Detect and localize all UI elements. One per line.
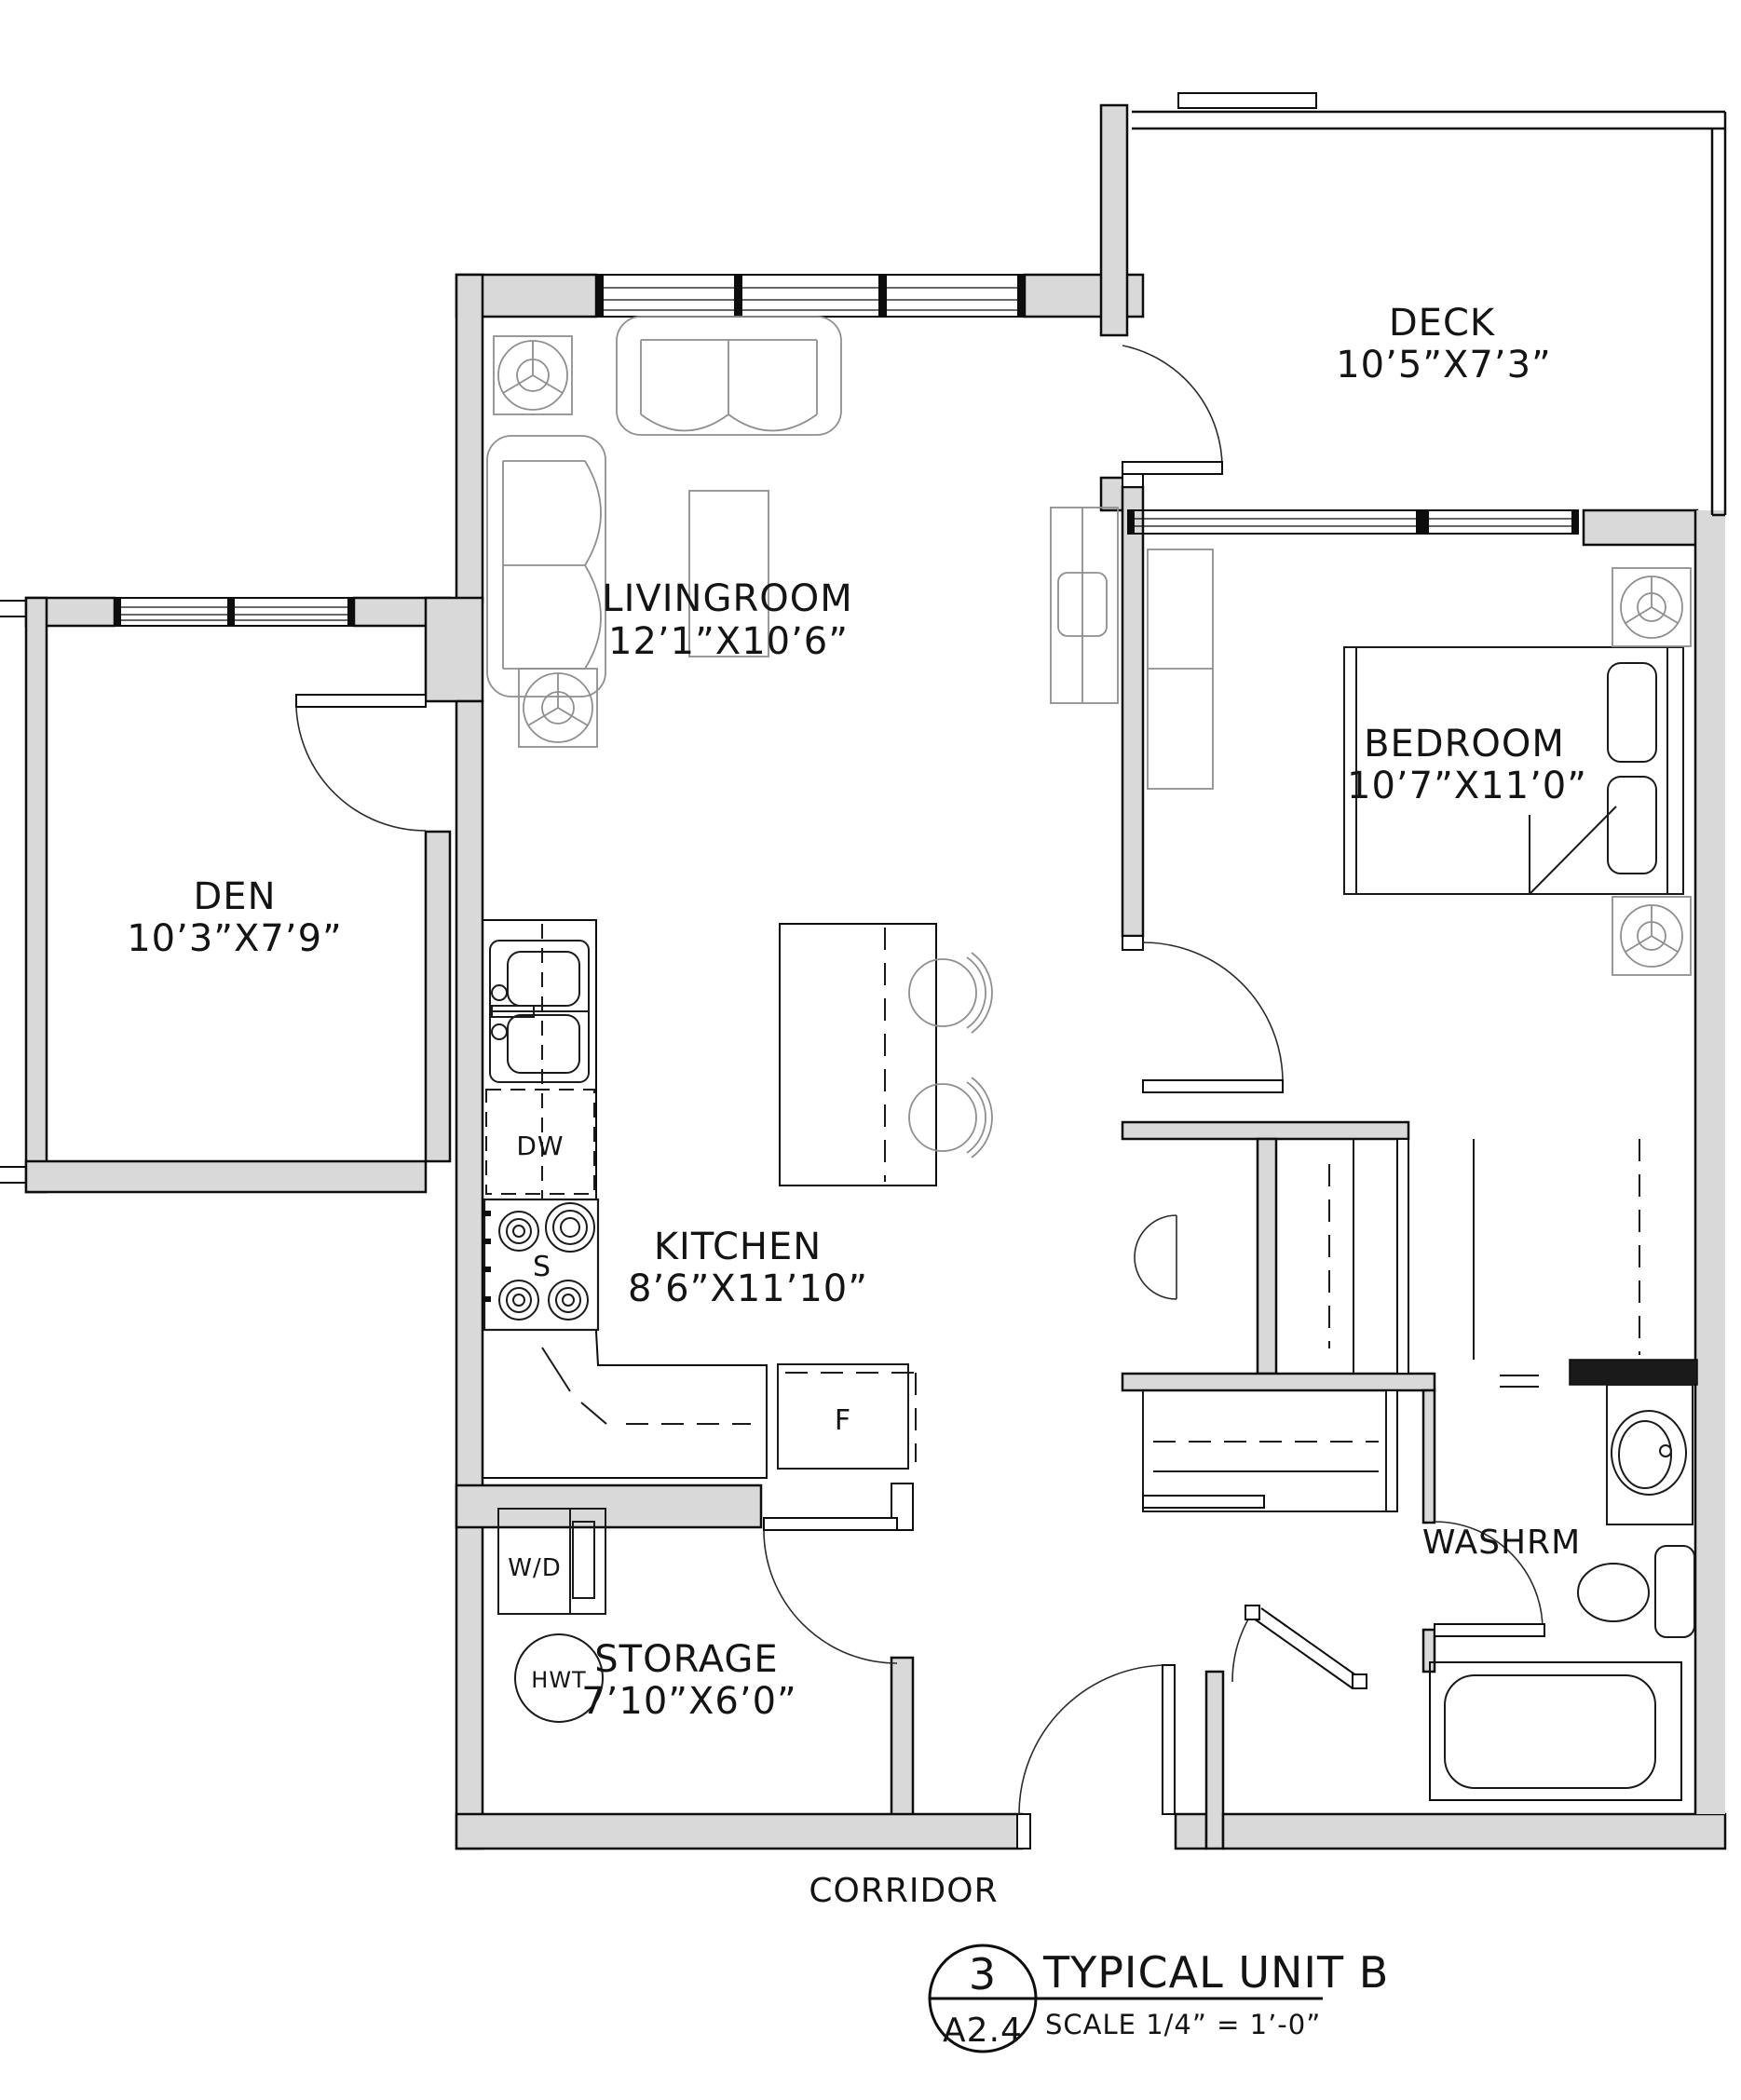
window-livingroom [596,275,1025,317]
drawing-title: TYPICAL UNIT B [1042,1947,1389,1998]
kitchen-island [780,924,992,1185]
floor-plan-sheet: DW S F [0,0,1741,2100]
fridge-label: F [835,1404,851,1437]
deck-name: DECK [1389,302,1496,345]
room-label-livingroom: LIVINGROOM 12’1”X10’6” [602,577,852,663]
blanket-fold [1530,806,1616,894]
ceiling-fan-icon [1612,568,1691,646]
bedroom-closet [1474,1139,1639,1360]
hot-water-tank-label: HWT [531,1667,586,1693]
room-label-kitchen: KITCHEN 8’6”X11’10” [628,1226,868,1310]
room-labels: DECK 10’5”X7’3” LIVINGROOM 12’1”X10’6” B… [127,302,1587,1910]
room-label-den: DEN 10’3”X7’9” [127,875,343,960]
hall-closet [1329,1139,1353,1374]
vanity-sink [1607,1385,1693,1524]
washer-dryer-label: W/D [508,1554,562,1582]
entry-door [1019,1665,1175,1814]
den-door [296,695,426,831]
pillow [1608,663,1656,762]
bathtub [1430,1662,1681,1800]
sheet-ref: A2.4 [943,2012,1023,2050]
hall-closet-double-doors [1135,1215,1177,1299]
neighbour-door-leaf [1178,93,1316,108]
linen-closet [1143,1390,1386,1511]
fridge: F [778,1364,916,1469]
bar-stool [909,1077,992,1158]
ceiling-fan-icon [1612,897,1691,975]
window-bedroom [1127,510,1579,534]
tv-unit [1051,508,1118,703]
kitchen-sink [490,941,589,1082]
washroom-name: WASHRM [1422,1524,1581,1562]
livingroom-furniture [487,317,1118,747]
room-label-bedroom: BEDROOM 10’7”X11’0” [1347,723,1587,807]
detail-number: 3 [969,1949,997,1999]
kitchen-fixtures: DW S F [483,920,992,1478]
ceiling-fan-icon [519,669,597,747]
bedroom-door [1143,942,1283,1092]
bedroom-dims: 10’7”X11’0” [1347,765,1587,807]
room-label-storage: STORAGE 7’10”X6’0” [581,1638,797,1723]
room-label-deck: DECK 10’5”X7’3” [1336,302,1552,386]
kitchen-counter-l [483,1332,767,1478]
kitchen-name: KITCHEN [654,1226,822,1268]
bar-stool [909,953,992,1033]
dishwasher-label: DW [516,1131,564,1161]
washroom-inner-door [1232,1605,1367,1688]
loveseat [487,436,605,697]
deck-door [1122,345,1222,474]
livingroom-dims: 12’1”X10’6” [608,620,849,663]
den-dims: 10’3”X7’9” [127,917,343,960]
dishwasher: DW [486,1090,594,1194]
closet-b-jamb [1500,1375,1539,1387]
dresser [1148,549,1213,789]
corridor-name: CORRIDOR [809,1872,998,1910]
sofa [617,317,841,435]
ceiling-fan-icon [494,336,572,414]
pillow [1608,777,1656,874]
den-name: DEN [194,875,277,918]
livingroom-name: LIVINGROOM [602,577,852,620]
stove-label: S [533,1251,551,1283]
title-block: 3 A2.4 TYPICAL UNIT B SCALE 1/4” = 1’-0” [930,1945,1389,2052]
window-den [115,598,354,626]
scale-label: SCALE 1/4” = 1’-0” [1045,2009,1321,2040]
storage-dims: 7’10”X6’0” [581,1680,797,1723]
washroom-fixtures [1430,1385,1694,1800]
stove: S [483,1199,598,1330]
deck-dims: 10’5”X7’3” [1336,344,1552,386]
bedroom-name: BEDROOM [1364,723,1565,765]
toilet [1578,1546,1694,1637]
storage-name: STORAGE [594,1638,778,1681]
floor-plan-drawing: DW S F [0,0,1741,2100]
kitchen-dims: 8’6”X11’10” [628,1267,868,1310]
storage-door [764,1518,897,1663]
